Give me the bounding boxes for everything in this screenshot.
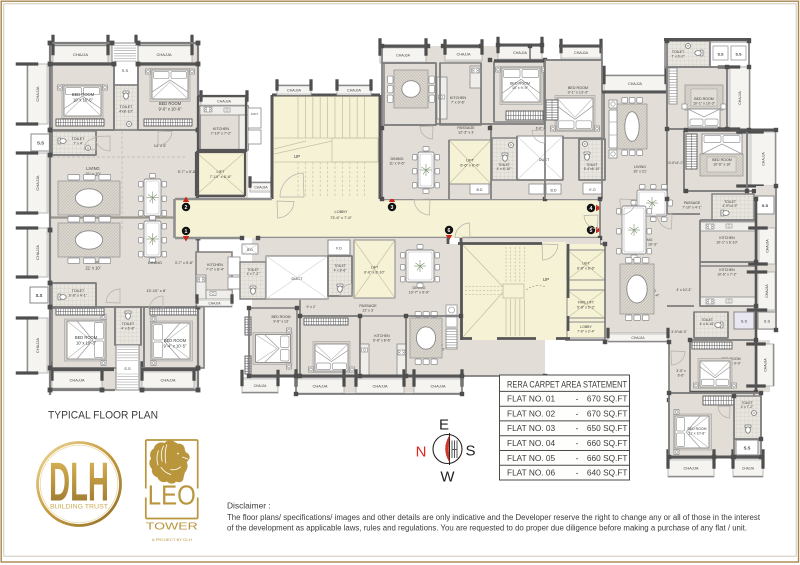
svg-text:TOILET: TOILET xyxy=(120,105,134,109)
svg-text:B.D: B.D xyxy=(477,188,483,192)
svg-text:6'-6" x 8'-6": 6'-6" x 8'-6" xyxy=(373,338,391,342)
svg-text:CHAJJA: CHAJJA xyxy=(742,467,755,471)
svg-text:CHAJJA: CHAJJA xyxy=(312,384,327,389)
svg-text:LIVING: LIVING xyxy=(634,165,646,169)
svg-text:FLAT NO. 03: FLAT NO. 03 xyxy=(507,423,555,433)
svg-text:6: 6 xyxy=(448,228,451,234)
svg-text:S.S: S.S xyxy=(741,319,748,324)
svg-text:CHAJJA: CHAJJA xyxy=(69,378,84,383)
svg-text:6'-8" x 4'-1": 6'-8" x 4'-1" xyxy=(69,293,88,297)
svg-text:FLAT NO. 06: FLAT NO. 06 xyxy=(507,468,555,478)
svg-text:CHAJJA: CHAJJA xyxy=(372,384,387,389)
svg-text:S.S: S.S xyxy=(762,203,769,208)
svg-text:KITCHEN: KITCHEN xyxy=(207,263,223,267)
svg-text:670 SQ.FT: 670 SQ.FT xyxy=(587,394,628,404)
svg-text:BED ROOM: BED ROOM xyxy=(568,86,588,90)
svg-text:CHAJJA: CHAJJA xyxy=(430,384,445,389)
svg-text:CHAJJA: CHAJJA xyxy=(628,82,642,86)
svg-text:6'-6" x 6'-6": 6'-6" x 6'-6" xyxy=(460,163,480,168)
svg-text:FLAT NO. 04: FLAT NO. 04 xyxy=(507,438,555,448)
svg-text:CHAJJA: CHAJJA xyxy=(513,51,527,55)
svg-text:-: - xyxy=(576,468,579,478)
svg-text:4' x 6'-10": 4' x 6'-10" xyxy=(497,167,513,171)
svg-text:S.S: S.S xyxy=(36,293,43,298)
svg-text:5'-7" x 5'-8": 5'-7" x 5'-8" xyxy=(178,170,197,174)
svg-text:9'-6" x 13': 9'-6" x 13' xyxy=(273,319,289,323)
svg-text:LIVING: LIVING xyxy=(86,166,99,171)
svg-text:FLAT NO. 02: FLAT NO. 02 xyxy=(507,409,555,419)
svg-text:CHAJJA: CHAJJA xyxy=(35,245,40,260)
svg-text:DINING: DINING xyxy=(148,260,162,265)
svg-text:10' x 9'-9": 10' x 9'-9" xyxy=(512,86,529,90)
svg-text:11' x 10'-8": 11' x 10'-8" xyxy=(689,431,707,435)
svg-text:FIRE LIFT: FIRE LIFT xyxy=(578,301,595,305)
svg-text:CHAJJA: CHAJJA xyxy=(156,52,171,57)
svg-text:CHAJJA: CHAJJA xyxy=(574,51,588,55)
svg-text:S.S: S.S xyxy=(744,446,751,451)
svg-text:10'-7" x 9'-9": 10'-7" x 9'-9" xyxy=(409,291,430,295)
svg-text:-: - xyxy=(576,453,579,463)
svg-text:BED ROOM: BED ROOM xyxy=(75,335,98,340)
svg-text:CHAJJA: CHAJJA xyxy=(287,89,301,93)
svg-text:BED ROOM: BED ROOM xyxy=(694,97,714,101)
svg-text:640 SQ.FT: 640 SQ.FT xyxy=(587,468,628,478)
svg-text:9'-4" x 10'-5": 9'-4" x 10'-5" xyxy=(164,343,187,348)
svg-text:4' x 8'-6": 4' x 8'-6" xyxy=(334,268,348,272)
svg-text:5'-8" x 5'-3": 5'-8" x 5'-3" xyxy=(577,306,595,310)
svg-text:LEO: LEO xyxy=(148,480,196,511)
svg-text:7'-10" x 7'-2": 7'-10" x 7'-2" xyxy=(211,132,232,136)
svg-text:LIFT: LIFT xyxy=(582,262,590,266)
svg-text:CHAJJA: CHAJJA xyxy=(254,384,268,388)
svg-text:PASSAGE: PASSAGE xyxy=(359,304,377,308)
svg-text:CHAJJA: CHAJJA xyxy=(35,338,40,353)
svg-text:4' x 10'-3": 4' x 10'-3" xyxy=(676,288,692,292)
svg-text:RERA CARPET AREA STATEMENT: RERA CARPET AREA STATEMENT xyxy=(507,379,627,389)
svg-text:CHAJJA: CHAJJA xyxy=(766,239,770,253)
svg-text:TOILET: TOILET xyxy=(72,137,86,141)
svg-text:B.D: B.D xyxy=(247,248,253,252)
svg-text:4'-9"x4'-9": 4'-9"x4'-9" xyxy=(722,204,738,208)
svg-text:BUILDING TRUST: BUILDING TRUST xyxy=(50,504,108,511)
svg-text:KITCHEN: KITCHEN xyxy=(450,96,467,100)
svg-text:4' x 7'-2": 4' x 7'-2" xyxy=(247,272,261,276)
svg-text:5: 5 xyxy=(590,228,593,234)
svg-text:A PROJECT BY DLH: A PROJECT BY DLH xyxy=(152,538,192,542)
svg-text:S: S xyxy=(465,443,475,460)
svg-text:6'-6": 6'-6" xyxy=(678,373,686,377)
svg-text:S.S: S.S xyxy=(735,53,742,57)
svg-text:S.S: S.S xyxy=(717,53,724,57)
svg-text:CHAJJA: CHAJJA xyxy=(765,284,769,298)
svg-text:KITCHEN: KITCHEN xyxy=(213,127,230,131)
svg-text:N: N xyxy=(416,444,427,461)
svg-text:CHAJJA: CHAJJA xyxy=(73,52,88,57)
svg-text:660 SQ.FT: 660 SQ.FT xyxy=(587,438,628,448)
svg-text:E.O: E.O xyxy=(589,188,595,192)
svg-text:BED ROOM: BED ROOM xyxy=(72,92,95,97)
svg-text:10'-6" x 7'-2": 10'-6" x 7'-2" xyxy=(717,272,737,276)
svg-text:5'-4"x6'-10": 5'-4"x6'-10" xyxy=(584,167,601,171)
svg-text:BED ROOM: BED ROOM xyxy=(164,338,187,343)
svg-text:9'-1" x 13'-3": 9'-1" x 13'-3" xyxy=(568,91,589,95)
svg-text:-: - xyxy=(576,438,579,448)
svg-text:The floor plans/ specification: The floor plans/ specifications/ images … xyxy=(227,513,761,522)
svg-text:-: - xyxy=(576,394,579,404)
svg-text:3: 3 xyxy=(391,205,394,211)
svg-text:10' x 10'-5": 10' x 10'-5" xyxy=(73,97,94,102)
svg-text:F.D: F.D xyxy=(336,247,342,251)
svg-text:650 SQ.FT: 650 SQ.FT xyxy=(587,423,628,433)
svg-text:W: W xyxy=(440,469,455,486)
svg-text:4: 4 xyxy=(590,206,593,212)
svg-text:10' x 10'-3": 10' x 10'-3" xyxy=(76,340,97,345)
svg-text:DINING: DINING xyxy=(391,157,404,161)
svg-text:S.S: S.S xyxy=(122,68,129,73)
svg-text:9' x 2': 9' x 2' xyxy=(307,305,316,309)
svg-text:BED ROOM: BED ROOM xyxy=(510,82,530,86)
svg-text:7' x 6'-2": 7' x 6'-2" xyxy=(671,54,685,58)
svg-text:TOWER: TOWER xyxy=(146,521,199,533)
svg-text:B.D: B.D xyxy=(551,189,557,193)
svg-text:LOBBY: LOBBY xyxy=(580,325,592,329)
svg-text:Disclaimer :: Disclaimer : xyxy=(227,501,271,511)
svg-text:LOBBY: LOBBY xyxy=(335,209,348,214)
svg-text:of the development as applicab: of the development as applicable laws, r… xyxy=(227,523,747,532)
svg-text:CHAJJA: CHAJJA xyxy=(764,358,768,372)
svg-text:E: E xyxy=(439,417,449,434)
svg-text:9'-6" x 10'-6": 9'-6" x 10'-6" xyxy=(159,106,182,111)
svg-text:CHAJJA: CHAJJA xyxy=(208,302,221,306)
svg-text:CHAJJA: CHAJJA xyxy=(762,152,766,166)
svg-text:670 SQ.FT: 670 SQ.FT xyxy=(587,409,628,419)
svg-text:S.S: S.S xyxy=(124,366,131,371)
svg-text:CHAJJA: CHAJJA xyxy=(457,53,471,57)
svg-text:CHAJJA: CHAJJA xyxy=(347,89,361,93)
svg-text:FLAT NO. 05: FLAT NO. 05 xyxy=(507,453,555,463)
svg-text:DUCT: DUCT xyxy=(291,276,303,281)
svg-text:7' x 9'-6": 7' x 9'-6" xyxy=(451,101,466,105)
svg-text:UP: UP xyxy=(543,277,549,282)
svg-text:13'-10" x 8': 13'-10" x 8' xyxy=(146,288,166,293)
svg-text:10'-5"x2'-1": 10'-5"x2'-1" xyxy=(667,161,683,165)
svg-text:7'-10" x 4'-1": 7'-10" x 4'-1" xyxy=(682,205,702,209)
svg-text:1: 1 xyxy=(185,229,188,235)
svg-text:BED ROOM: BED ROOM xyxy=(712,158,732,162)
svg-text:7'-2" x 8'-4": 7'-2" x 8'-4" xyxy=(206,267,225,271)
svg-text:2: 2 xyxy=(185,205,188,211)
svg-text:UP: UP xyxy=(294,154,300,159)
svg-text:12'-3" x 3': 12'-3" x 3' xyxy=(458,131,474,135)
svg-text:12' x 3': 12' x 3' xyxy=(362,309,374,313)
svg-text:7'-10" x 6'-6": 7'-10" x 6'-6" xyxy=(210,174,232,179)
svg-text:10' x 21': 10' x 21' xyxy=(633,170,647,174)
svg-text:7' x 4': 7' x 4' xyxy=(73,142,83,146)
svg-text:7'-6" x 2'-4": 7'-6" x 2'-4" xyxy=(577,330,595,334)
svg-text:-: - xyxy=(576,423,579,433)
svg-text:CHAJJA: CHAJJA xyxy=(35,86,40,101)
svg-text:CHAJJA: CHAJJA xyxy=(160,378,175,383)
svg-text:73'-6" x 7'-6": 73'-6" x 7'-6" xyxy=(330,215,352,220)
svg-text:CHAJJA: CHAJJA xyxy=(254,186,268,190)
svg-text:21' x 10': 21' x 10' xyxy=(86,265,101,270)
svg-text:TOILET: TOILET xyxy=(122,322,135,326)
svg-text:3'-7" x 5'-8": 3'-7" x 5'-8" xyxy=(175,261,194,265)
svg-text:TYPICAL FLOOR PLAN: TYPICAL FLOOR PLAN xyxy=(48,410,158,422)
svg-text:CHAJJA: CHAJJA xyxy=(631,336,645,340)
svg-text:6'-6" x 6'-6": 6'-6" x 6'-6" xyxy=(577,267,595,271)
svg-text:CHAJJA: CHAJJA xyxy=(683,466,698,471)
svg-text:10'-1" x 6'-10": 10'-1" x 6'-10" xyxy=(716,240,738,244)
svg-text:4' x 6'-10": 4' x 6'-10" xyxy=(700,322,716,326)
svg-text:PASSAGE: PASSAGE xyxy=(457,126,475,130)
svg-text:CHAJJA: CHAJJA xyxy=(396,54,410,58)
svg-text:FLAT NO. 01: FLAT NO. 01 xyxy=(507,394,555,404)
svg-text:CHAJJA: CHAJJA xyxy=(217,100,231,104)
svg-text:10'-6" x 10': 10'-6" x 10' xyxy=(713,162,731,166)
svg-text:CHAJJA: CHAJJA xyxy=(738,91,742,105)
svg-text:TOILET: TOILET xyxy=(72,289,85,293)
svg-text:S.S: S.S xyxy=(764,319,771,324)
svg-text:4' x 6'-8": 4' x 6'-8" xyxy=(121,326,135,330)
svg-text:4'x8'-10": 4'x8'-10" xyxy=(119,110,134,114)
svg-text:6'-6" x 8'-10": 6'-6" x 8'-10" xyxy=(364,271,385,275)
svg-text:S.S: S.S xyxy=(37,141,44,146)
svg-text:11' x 9'-6": 11' x 9'-6" xyxy=(389,162,405,166)
svg-text:LIFT: LIFT xyxy=(371,266,379,270)
svg-text:660 SQ.FT: 660 SQ.FT xyxy=(587,453,628,463)
svg-text:-: - xyxy=(576,409,579,419)
svg-text:3'-9"x6'-3": 3'-9"x6'-3" xyxy=(671,330,687,334)
svg-text:CHAJJA: CHAJJA xyxy=(35,175,40,190)
svg-text:10'-1" x 10'-3": 10'-1" x 10'-3" xyxy=(693,101,716,105)
svg-text:4' x 7'-2": 4' x 7'-2" xyxy=(741,405,754,409)
svg-text:DUCT: DUCT xyxy=(251,113,258,116)
